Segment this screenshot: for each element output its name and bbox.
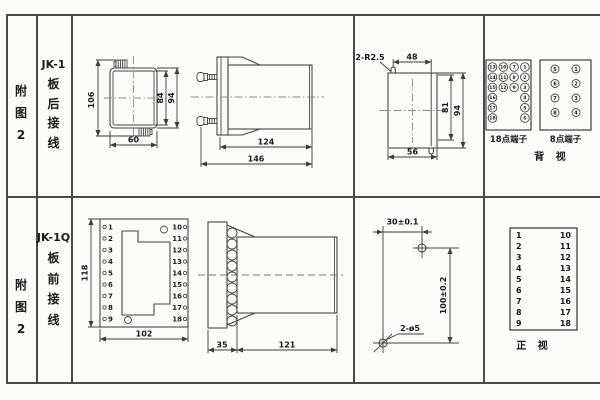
pin-number: 7	[108, 293, 113, 301]
back-view-label: 背 视	[534, 150, 569, 163]
row1-figure-label: 附 图 2	[7, 80, 35, 146]
jk1-panel-cutout-drawing: 48 2-R2.5 81 94 56	[350, 25, 480, 170]
terminal-pin: 6	[553, 81, 557, 87]
terminal-pin: 5	[523, 105, 526, 111]
pin-number: 4	[516, 264, 522, 273]
terminal-pin: 4	[574, 110, 578, 116]
drilling-template-drawing: 30±0.1 100±0.2 2-ø5	[355, 212, 470, 362]
figure-char: 附	[15, 80, 27, 102]
pin-number: 6	[516, 286, 522, 295]
jk1q-front-view-drawing: 1 2 3 4 5 6 7 8 9 10 11 12 13 14 15 16 1…	[82, 210, 197, 350]
pin-number: 16	[560, 297, 572, 306]
terminal-pin: 13	[489, 65, 495, 71]
radius-note-label: 2-R2.5	[355, 53, 385, 62]
terminal-pin: 7	[512, 65, 515, 71]
wiring-char: 接	[47, 289, 59, 310]
terminal-pin: 8	[553, 110, 557, 116]
pin-number: 11	[172, 235, 182, 243]
dim-94-label: 94	[453, 105, 462, 117]
pin-number: 9	[108, 316, 113, 324]
front-terminals: 1 2 3 4 5 6 7 8 9 10 11 12 13 14 15 16 1…	[103, 224, 187, 324]
dim-56-label: 56	[407, 148, 419, 157]
table-border-bottom	[6, 382, 600, 384]
figure-char: 2	[17, 124, 25, 146]
dim-30-label: 30±0.1	[386, 218, 418, 227]
terminal-pin: 11	[500, 75, 506, 81]
pin-number: 18	[560, 319, 572, 328]
pin-number: 14	[560, 275, 572, 284]
body-outline	[191, 57, 324, 135]
cutout-outline	[379, 67, 446, 154]
pin-number: 12	[172, 247, 182, 255]
wiring-char: 板	[47, 248, 59, 269]
pin-number: 16	[172, 293, 182, 301]
case-outline	[104, 56, 163, 140]
wiring-char: 接	[47, 114, 59, 134]
terminal-back-view: 13 10 7 1 14 11 8 2 15 12 9 3 16 4 17 5 …	[483, 52, 600, 170]
dim-121-label: 121	[279, 341, 296, 350]
pin-number: 14	[172, 270, 182, 278]
dim-146-label: 146	[248, 155, 265, 164]
pin-number: 1	[516, 231, 522, 240]
pin-table-front-view: 1 10 2 11 3 12 4 13 5 14 6 15 7 16 8 17 …	[505, 222, 600, 357]
terminal-pin: 9	[512, 85, 515, 91]
terminal-block-18: 13 10 7 1 14 11 8 2 15 12 9 3 16 4 17 5 …	[486, 60, 531, 130]
terminal-pin: 17	[489, 105, 495, 111]
terminal-pin: 15	[489, 85, 495, 91]
pin-number: 8	[108, 304, 113, 312]
dim-81-label: 81	[441, 102, 450, 114]
pin-number: 17	[172, 304, 182, 312]
wiring-char: 线	[47, 310, 59, 331]
terminal-pin: 6	[523, 116, 526, 122]
terminal-pin: 4	[523, 95, 526, 101]
table-border-top	[6, 14, 600, 16]
mounting-stud	[197, 117, 217, 126]
pin-number: 17	[560, 308, 571, 317]
terminal-pin: 2	[523, 75, 526, 81]
mounting-hole	[125, 317, 132, 324]
pin-number: 15	[172, 281, 182, 289]
terminal-pin: 5	[553, 67, 557, 73]
front-view-label: 正 视	[516, 339, 551, 352]
terminal-block-8: 5 1 6 2 7 3 8 4	[540, 60, 591, 130]
pin-number: 5	[516, 275, 522, 284]
model-name: JK-1Q	[37, 228, 70, 248]
wiring-char: 板	[47, 75, 59, 95]
pin-table-numbers: 1 10 2 11 3 12 4 13 5 14 6 15 7 16 8 17 …	[516, 231, 571, 328]
dim-48-label: 48	[406, 53, 418, 62]
row2-figure-label: 附 图 2	[7, 274, 35, 340]
dim-102-label: 102	[136, 330, 153, 339]
figure-char: 附	[15, 274, 27, 296]
dimensions: 48 2-R2.5 81 94 56	[355, 53, 466, 161]
wiring-char: 后	[47, 95, 59, 115]
terminal-18-label: 18点端子	[490, 134, 528, 145]
hole-note-label: 2-ø5	[400, 324, 420, 333]
row1-model-label: JK-1 板 后 接 线	[37, 55, 70, 153]
figure-char: 2	[17, 318, 25, 340]
pin-number: 9	[516, 319, 522, 328]
pin-number: 7	[516, 297, 522, 306]
pin-number: 3	[516, 253, 522, 262]
pin-number: 10	[172, 224, 182, 232]
terminal-pin: 10	[500, 65, 506, 71]
terminal-pin: 14	[489, 75, 495, 81]
terminal-pin: 7	[553, 96, 557, 102]
terminal-pin: 1	[523, 65, 526, 71]
dimensions: 106 84 94 60	[87, 60, 179, 148]
relay-dimension-datasheet: 附 图 2 JK-1 板 后 接 线 附 图 2 JK-1Q 板 前 接 线	[0, 0, 600, 400]
pin-number: 13	[172, 258, 182, 266]
dim-124-label: 124	[258, 138, 275, 147]
figure-char: 图	[15, 296, 27, 318]
jk1-side-view-drawing: 124 146	[188, 42, 328, 172]
pin-number: 4	[108, 258, 113, 266]
dim-106-label: 106	[87, 91, 96, 108]
pin-number: 1	[108, 224, 113, 232]
terminal-lugs	[227, 228, 237, 326]
mounting-stud	[197, 73, 217, 82]
pin-number: 6	[108, 281, 113, 289]
terminal-pin: 1	[574, 67, 578, 73]
pin-number: 10	[560, 231, 572, 240]
pin-number: 11	[560, 242, 572, 251]
terminal-pin: 18	[489, 116, 495, 122]
dim-60-label: 60	[128, 136, 140, 145]
table-border-middle	[6, 196, 600, 198]
row2-model-label: JK-1Q 板 前 接 线	[36, 228, 71, 330]
pin-number: 2	[516, 242, 522, 251]
pin-number: 13	[560, 264, 571, 273]
wiring-char: 线	[47, 134, 59, 154]
model-name: JK-1	[42, 55, 66, 75]
dim-84-label: 84	[156, 92, 165, 104]
pin-number: 8	[516, 308, 522, 317]
pin-number: 12	[560, 253, 571, 262]
body-outline	[198, 222, 343, 328]
jk1q-side-view-drawing: 35 121	[193, 210, 348, 358]
mounting-hole	[161, 226, 168, 233]
dim-118-label: 118	[81, 264, 90, 281]
pin-number: 5	[108, 270, 113, 278]
terminal-pin: 8	[512, 75, 515, 81]
terminal-pin: 3	[574, 96, 578, 102]
dim-100-label: 100±0.2	[439, 277, 448, 315]
terminal-pin: 3	[523, 85, 526, 91]
terminal-pin: 2	[574, 81, 578, 87]
terminal-pin: 12	[500, 85, 506, 91]
pin-number: 15	[560, 286, 572, 295]
pin-number: 18	[172, 316, 182, 324]
dim-94-label: 94	[167, 92, 176, 104]
dim-35-label: 35	[216, 341, 228, 350]
terminal-pin: 16	[489, 95, 495, 101]
terminal-8-label: 8点端子	[550, 134, 582, 145]
pin-number: 2	[108, 235, 113, 243]
jk1-front-view-drawing: 106 84 94 60	[83, 36, 195, 158]
wiring-char: 前	[47, 269, 59, 290]
table-divider-2	[71, 14, 73, 384]
dimensions: 30±0.1 100±0.2 2-ø5	[373, 218, 450, 344]
figure-char: 图	[15, 102, 27, 124]
pin-number: 3	[108, 247, 113, 255]
dimensions: 124 146	[201, 127, 312, 168]
